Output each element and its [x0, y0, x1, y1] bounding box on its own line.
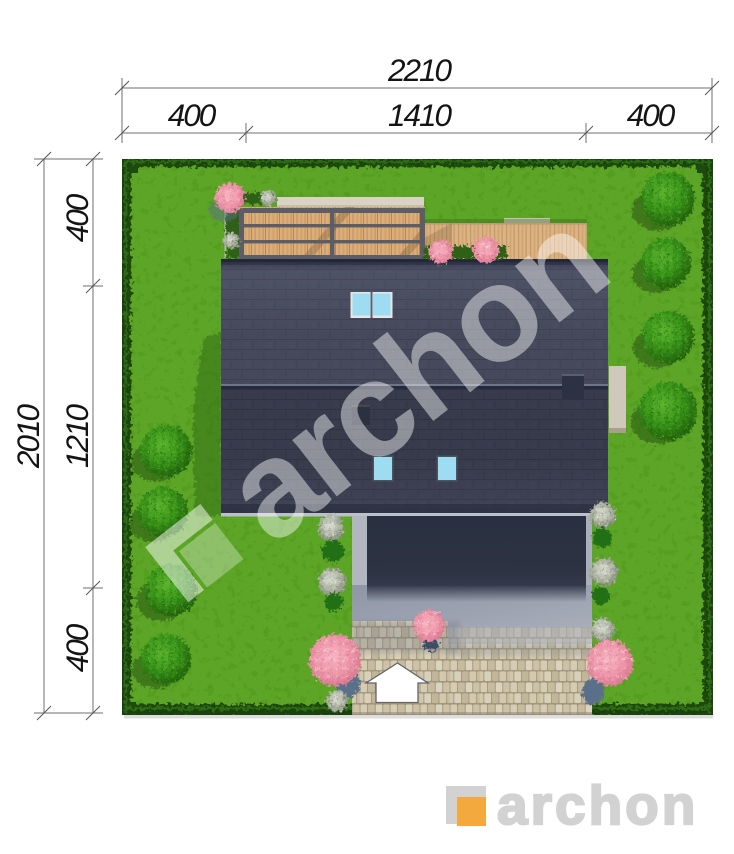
svg-text:400: 400: [59, 623, 95, 672]
svg-text:1210: 1210: [59, 403, 95, 468]
svg-text:archon: archon: [497, 774, 698, 836]
svg-text:400: 400: [627, 97, 676, 133]
svg-text:2010: 2010: [10, 403, 46, 469]
svg-text:2210: 2210: [387, 52, 453, 88]
svg-text:400: 400: [168, 97, 217, 133]
svg-text:400: 400: [59, 193, 95, 242]
svg-text:1410: 1410: [388, 97, 453, 133]
